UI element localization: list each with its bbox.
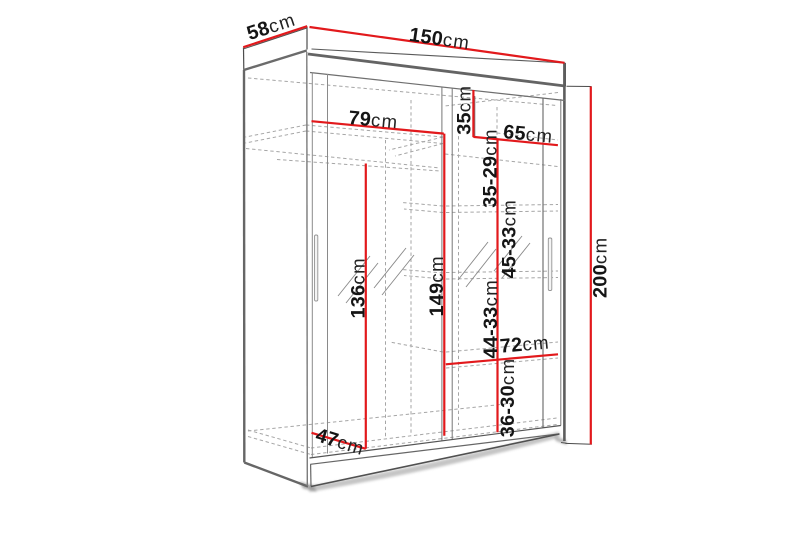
svg-text:200cm: 200cm [590,237,612,299]
svg-text:79cm: 79cm [348,107,400,133]
svg-text:44-33cm: 44-33cm [480,279,502,359]
svg-text:45-33cm: 45-33cm [499,199,521,279]
svg-text:36-30cm: 36-30cm [497,358,519,438]
svg-text:35cm: 35cm [453,85,475,135]
svg-text:136cm: 136cm [348,257,370,319]
svg-text:149cm: 149cm [426,255,448,317]
svg-text:35-29cm: 35-29cm [480,128,502,208]
